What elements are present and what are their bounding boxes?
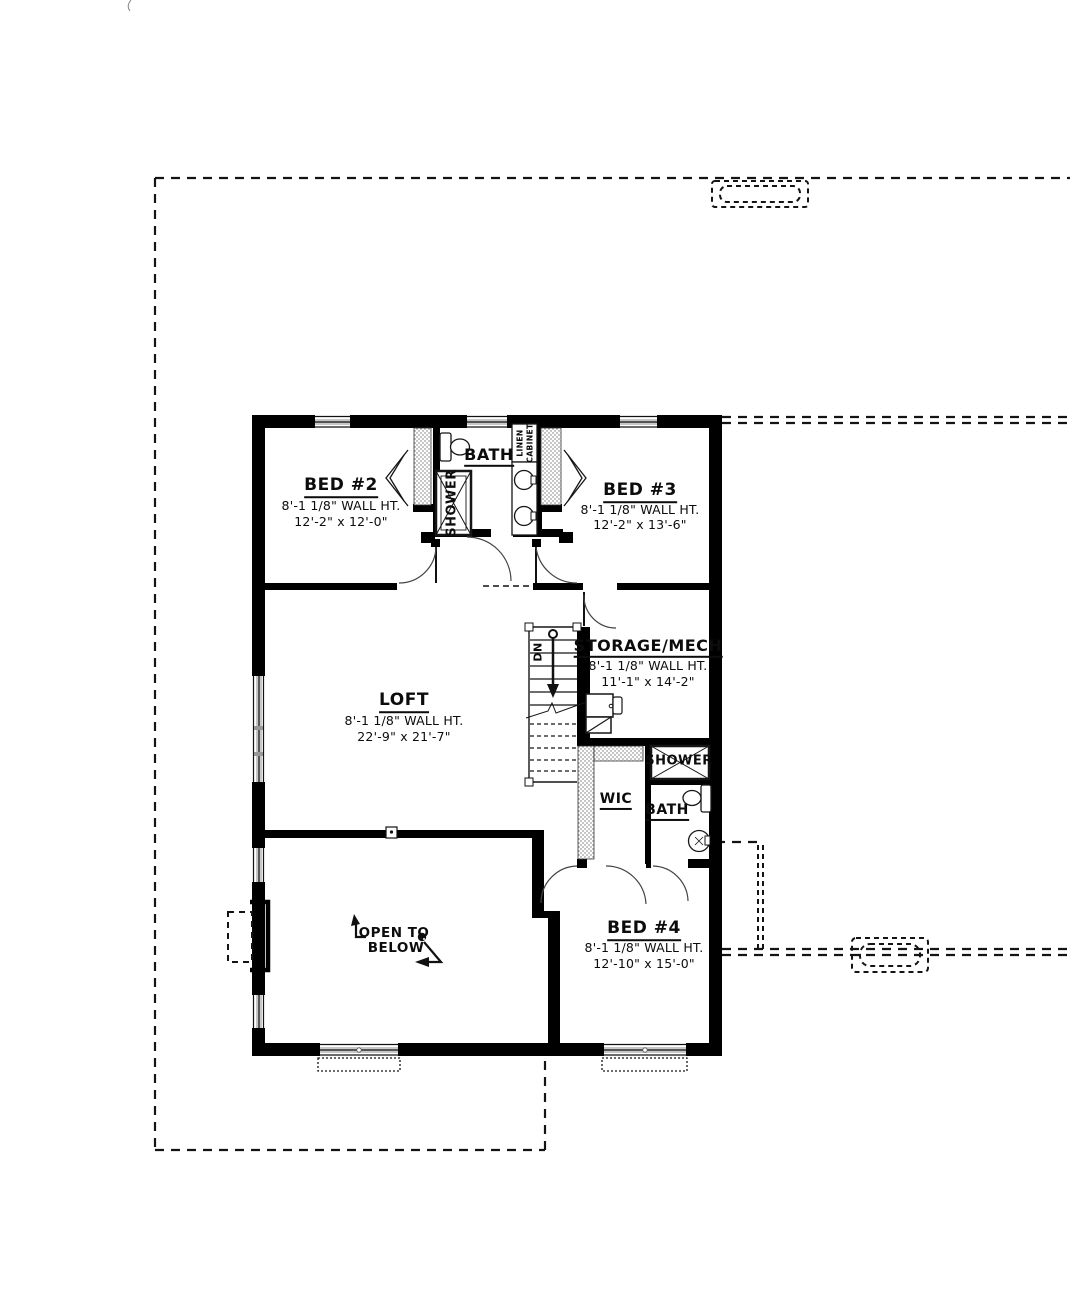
roof-dormer-outlines (712, 181, 928, 972)
window-left-loft (252, 676, 265, 782)
bed2-wall-height: 8'-1 1/8" WALL HT. (282, 499, 401, 513)
room-label-bed2: BED #2 (304, 476, 378, 496)
room-label-loft: LOFT (379, 691, 429, 711)
open-below-label-line2: BELOW (368, 941, 425, 957)
window-top-1 (315, 415, 350, 428)
loft-dimensions: 22'-9" x 21'-7" (357, 730, 450, 744)
storage-wall-height: 8'-1 1/8" WALL HT. (589, 659, 708, 673)
wall-post-node (386, 827, 397, 838)
room-label-bed3: BED #3 (603, 481, 677, 501)
window-left-open2 (252, 995, 265, 1028)
bed2-dimensions: 12'-2" x 12'-0" (294, 515, 387, 529)
bath-lower-label: BATH (645, 802, 689, 818)
floorplan: BED #2 8'-1 1/8" WALL HT. 12'-2" x 12'-0… (0, 0, 1070, 1292)
mechanical-unit (586, 694, 622, 733)
storage-dimensions: 11'-1" x 14'-2" (601, 675, 694, 689)
room-label-bath-upper: BATH (464, 446, 514, 464)
room-label-bed4: BED #4 (607, 919, 681, 939)
wic-label: WIC (600, 791, 632, 807)
window-top-3 (620, 415, 657, 428)
window-bottom-1 (320, 1043, 398, 1056)
double-vanity (512, 462, 537, 535)
bed4-wall-height: 8'-1 1/8" WALL HT. (585, 941, 704, 955)
window-bottom-2 (604, 1043, 686, 1056)
crop-mark (128, 0, 131, 11)
bed3-wall-height: 8'-1 1/8" WALL HT. (581, 503, 700, 517)
sink-lower (689, 831, 711, 852)
bed3-dimensions: 12'-2" x 13'-6" (593, 518, 686, 532)
window-left-open1 (252, 848, 265, 882)
bed4-dimensions: 12'-10" x 15'-0" (593, 957, 695, 971)
shower-lower-label: SHOWER (645, 755, 713, 770)
room-label-storage: STORAGE/MECH (574, 637, 723, 655)
linen-cabinet-label: LINEN CABINET (515, 423, 535, 462)
stairs-dn-label: DN (533, 642, 546, 661)
loft-wall-height: 8'-1 1/8" WALL HT. (345, 714, 464, 728)
window-top-2 (467, 415, 507, 428)
shower-upper-label: SHOWER (446, 469, 461, 537)
